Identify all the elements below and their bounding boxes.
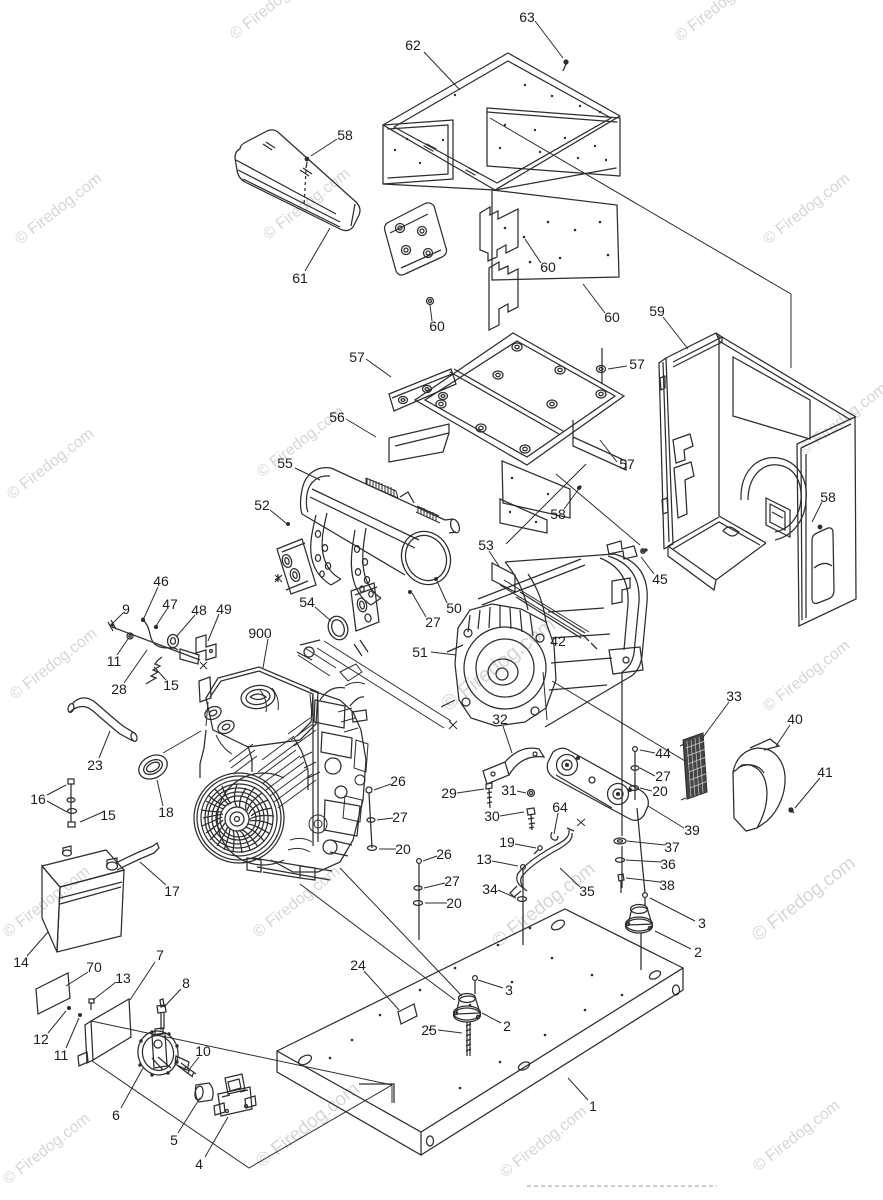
svg-text:41: 41 (817, 764, 833, 780)
svg-text:60: 60 (604, 309, 620, 325)
svg-text:10: 10 (195, 1043, 211, 1059)
svg-text:55: 55 (277, 455, 293, 471)
svg-text:4: 4 (195, 1156, 203, 1172)
svg-text:24: 24 (350, 957, 366, 973)
svg-text:12: 12 (33, 1031, 49, 1047)
svg-text:27: 27 (655, 768, 671, 784)
svg-text:52: 52 (254, 497, 270, 513)
svg-text:9: 9 (122, 601, 130, 617)
svg-text:70: 70 (86, 959, 102, 975)
svg-text:29: 29 (441, 785, 457, 801)
svg-text:58: 58 (337, 127, 353, 143)
svg-text:58: 58 (820, 489, 836, 505)
svg-text:62: 62 (405, 37, 421, 53)
svg-text:26: 26 (390, 773, 406, 789)
svg-text:2: 2 (694, 944, 702, 960)
svg-text:38: 38 (659, 877, 675, 893)
svg-text:45: 45 (652, 571, 668, 587)
svg-text:27: 27 (392, 809, 408, 825)
svg-text:40: 40 (787, 711, 803, 727)
svg-text:20: 20 (446, 895, 462, 911)
svg-text:16: 16 (30, 791, 46, 807)
svg-text:30: 30 (484, 808, 500, 824)
svg-text:33: 33 (726, 688, 742, 704)
svg-text:36: 36 (660, 856, 676, 872)
svg-text:34: 34 (482, 881, 498, 897)
svg-text:27: 27 (444, 873, 460, 889)
svg-text:23: 23 (87, 757, 103, 773)
svg-text:13: 13 (115, 970, 131, 986)
svg-text:25: 25 (421, 1022, 437, 1038)
svg-text:48: 48 (191, 602, 207, 618)
svg-text:64: 64 (552, 799, 568, 815)
svg-text:11: 11 (107, 653, 122, 669)
svg-text:50: 50 (446, 600, 462, 616)
svg-text:47: 47 (162, 596, 178, 612)
svg-text:8: 8 (182, 975, 190, 991)
svg-text:37: 37 (664, 839, 680, 855)
svg-text:26: 26 (436, 846, 452, 862)
svg-text:46: 46 (153, 573, 169, 589)
svg-text:39: 39 (684, 822, 700, 838)
svg-text:28: 28 (111, 681, 127, 697)
svg-text:18: 18 (158, 804, 174, 820)
svg-text:58: 58 (550, 506, 566, 522)
svg-text:17: 17 (164, 883, 180, 899)
svg-text:51: 51 (412, 644, 428, 660)
svg-text:57: 57 (619, 456, 635, 472)
svg-text:6: 6 (112, 1107, 120, 1123)
svg-text:44: 44 (655, 745, 671, 761)
svg-text:53: 53 (478, 537, 494, 553)
svg-text:56: 56 (329, 409, 345, 425)
svg-text:27: 27 (425, 614, 441, 630)
svg-text:11: 11 (54, 1047, 69, 1063)
svg-text:19: 19 (499, 834, 515, 850)
svg-text:20: 20 (652, 783, 668, 799)
svg-text:2: 2 (503, 1018, 511, 1034)
svg-text:60: 60 (540, 259, 556, 275)
svg-text:61: 61 (292, 270, 308, 286)
svg-text:42: 42 (550, 633, 566, 649)
svg-text:13: 13 (476, 851, 492, 867)
svg-text:900: 900 (248, 625, 272, 641)
svg-text:1: 1 (589, 1098, 597, 1114)
svg-text:54: 54 (299, 594, 315, 610)
svg-text:15: 15 (100, 807, 116, 823)
svg-text:3: 3 (698, 915, 706, 931)
svg-text:57: 57 (629, 356, 645, 372)
svg-text:31: 31 (501, 782, 517, 798)
svg-text:57: 57 (349, 349, 365, 365)
svg-text:35: 35 (579, 883, 595, 899)
svg-text:7: 7 (156, 947, 164, 963)
svg-text:63: 63 (519, 9, 535, 25)
svg-text:59: 59 (649, 303, 665, 319)
svg-text:14: 14 (13, 954, 29, 970)
svg-text:20: 20 (395, 841, 411, 857)
svg-text:3: 3 (505, 982, 513, 998)
svg-text:32: 32 (492, 711, 508, 727)
svg-text:5: 5 (170, 1132, 178, 1148)
